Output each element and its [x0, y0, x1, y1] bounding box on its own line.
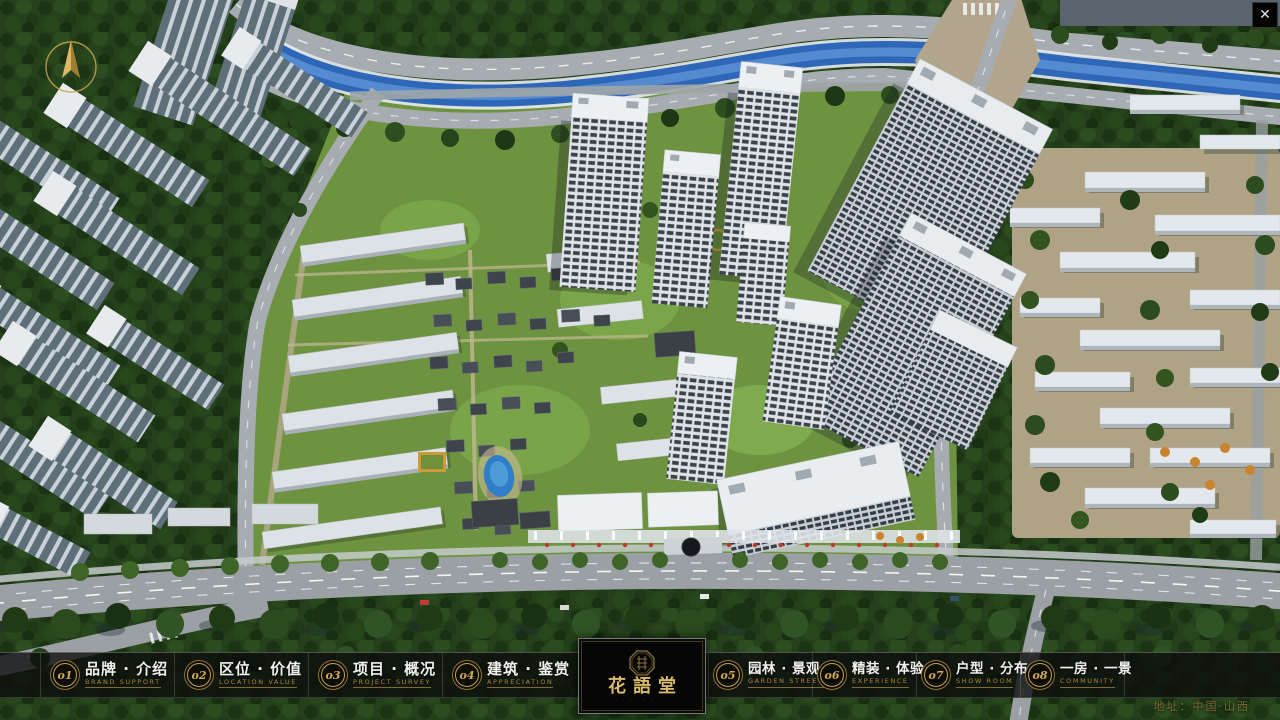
compass-icon: [37, 34, 107, 104]
close-button[interactable]: ✕: [1252, 2, 1278, 28]
nav-item-brand-intro[interactable]: o1 品牌 · 介绍BRAND SUPPORT: [40, 653, 174, 697]
nav-item-interior-experience[interactable]: o6 精装 · 体验EXPERIENCE: [812, 653, 916, 697]
nav-item-project-survey[interactable]: o3 项目 · 概况PROJECT SURVEY: [308, 653, 442, 697]
nav-item-room-view[interactable]: o8 一房 · 一景COMMUNITY: [1020, 653, 1124, 697]
nav-item-garden-landscape[interactable]: o5 园林 · 景观GARDEN STREET: [708, 653, 812, 697]
item-label-zh: 品牌 · 介绍: [85, 662, 168, 677]
item-number-badge: o7: [924, 663, 948, 687]
item-label-en: PROJECT SURVEY: [353, 679, 431, 689]
seal-icon: [629, 650, 655, 676]
item-label-en: SHOW ROOM: [956, 678, 1013, 688]
item-label-zh: 精装 · 体验: [852, 663, 916, 677]
nav-item-location-value[interactable]: o2 区位 · 价值LOCATION VALUE: [174, 653, 308, 697]
item-label-zh: 园林 · 景观: [748, 663, 812, 677]
address-text: 地址：中国·山西: [1154, 698, 1251, 714]
item-number: o8: [1033, 669, 1048, 682]
aerial-masterplan-render: [0, 0, 1280, 720]
app-window: ✕ o1 品牌 · 介绍BRAND SUPPORT o2 区位 · 价值LOCA…: [0, 0, 1280, 720]
close-icon: ✕: [1259, 7, 1271, 23]
item-label-zh: 一房 · 一景: [1060, 663, 1124, 677]
item-label-en: LOCATION VALUE: [219, 679, 297, 689]
logo-subtitle: · · · · · · · ·: [615, 698, 669, 703]
item-number-badge: o6: [820, 663, 844, 687]
item-number: o2: [192, 669, 207, 682]
item-label-en: BRAND SUPPORT: [85, 679, 161, 689]
item-number: o7: [929, 669, 944, 682]
navbar-right-spacer: [1124, 653, 1280, 697]
item-number-badge: o8: [1028, 663, 1052, 687]
nav-item-floorplan-distribution[interactable]: o7 户型 · 分布SHOW ROOM: [916, 653, 1020, 697]
item-number-badge: o2: [187, 663, 211, 687]
item-number: o4: [460, 669, 475, 682]
nav-item-architecture[interactable]: o4 建筑 · 鉴赏APPRECIATION: [442, 653, 576, 697]
item-label-zh: 区位 · 价值: [219, 662, 302, 677]
item-number: o5: [721, 669, 736, 682]
item-label-en: COMMUNITY: [1060, 678, 1115, 688]
item-number: o6: [825, 669, 840, 682]
item-number-badge: o1: [53, 663, 77, 687]
item-label-en: EXPERIENCE: [852, 678, 909, 688]
item-number: o1: [58, 669, 73, 682]
item-label-zh: 户型 · 分布: [956, 663, 1020, 677]
item-label-zh: 项目 · 概况: [353, 662, 436, 677]
navbar-left-spacer: [0, 653, 40, 697]
item-number: o3: [326, 669, 341, 682]
item-number-badge: o4: [455, 663, 479, 687]
item-label-en: APPRECIATION: [487, 679, 553, 689]
brand-logo[interactable]: 花語堂 · · · · · · · ·: [578, 638, 706, 714]
logo-title: 花語堂: [601, 678, 683, 696]
item-number-badge: o3: [321, 663, 345, 687]
item-label-zh: 建筑 · 鉴赏: [487, 662, 570, 677]
item-number-badge: o5: [716, 663, 740, 687]
